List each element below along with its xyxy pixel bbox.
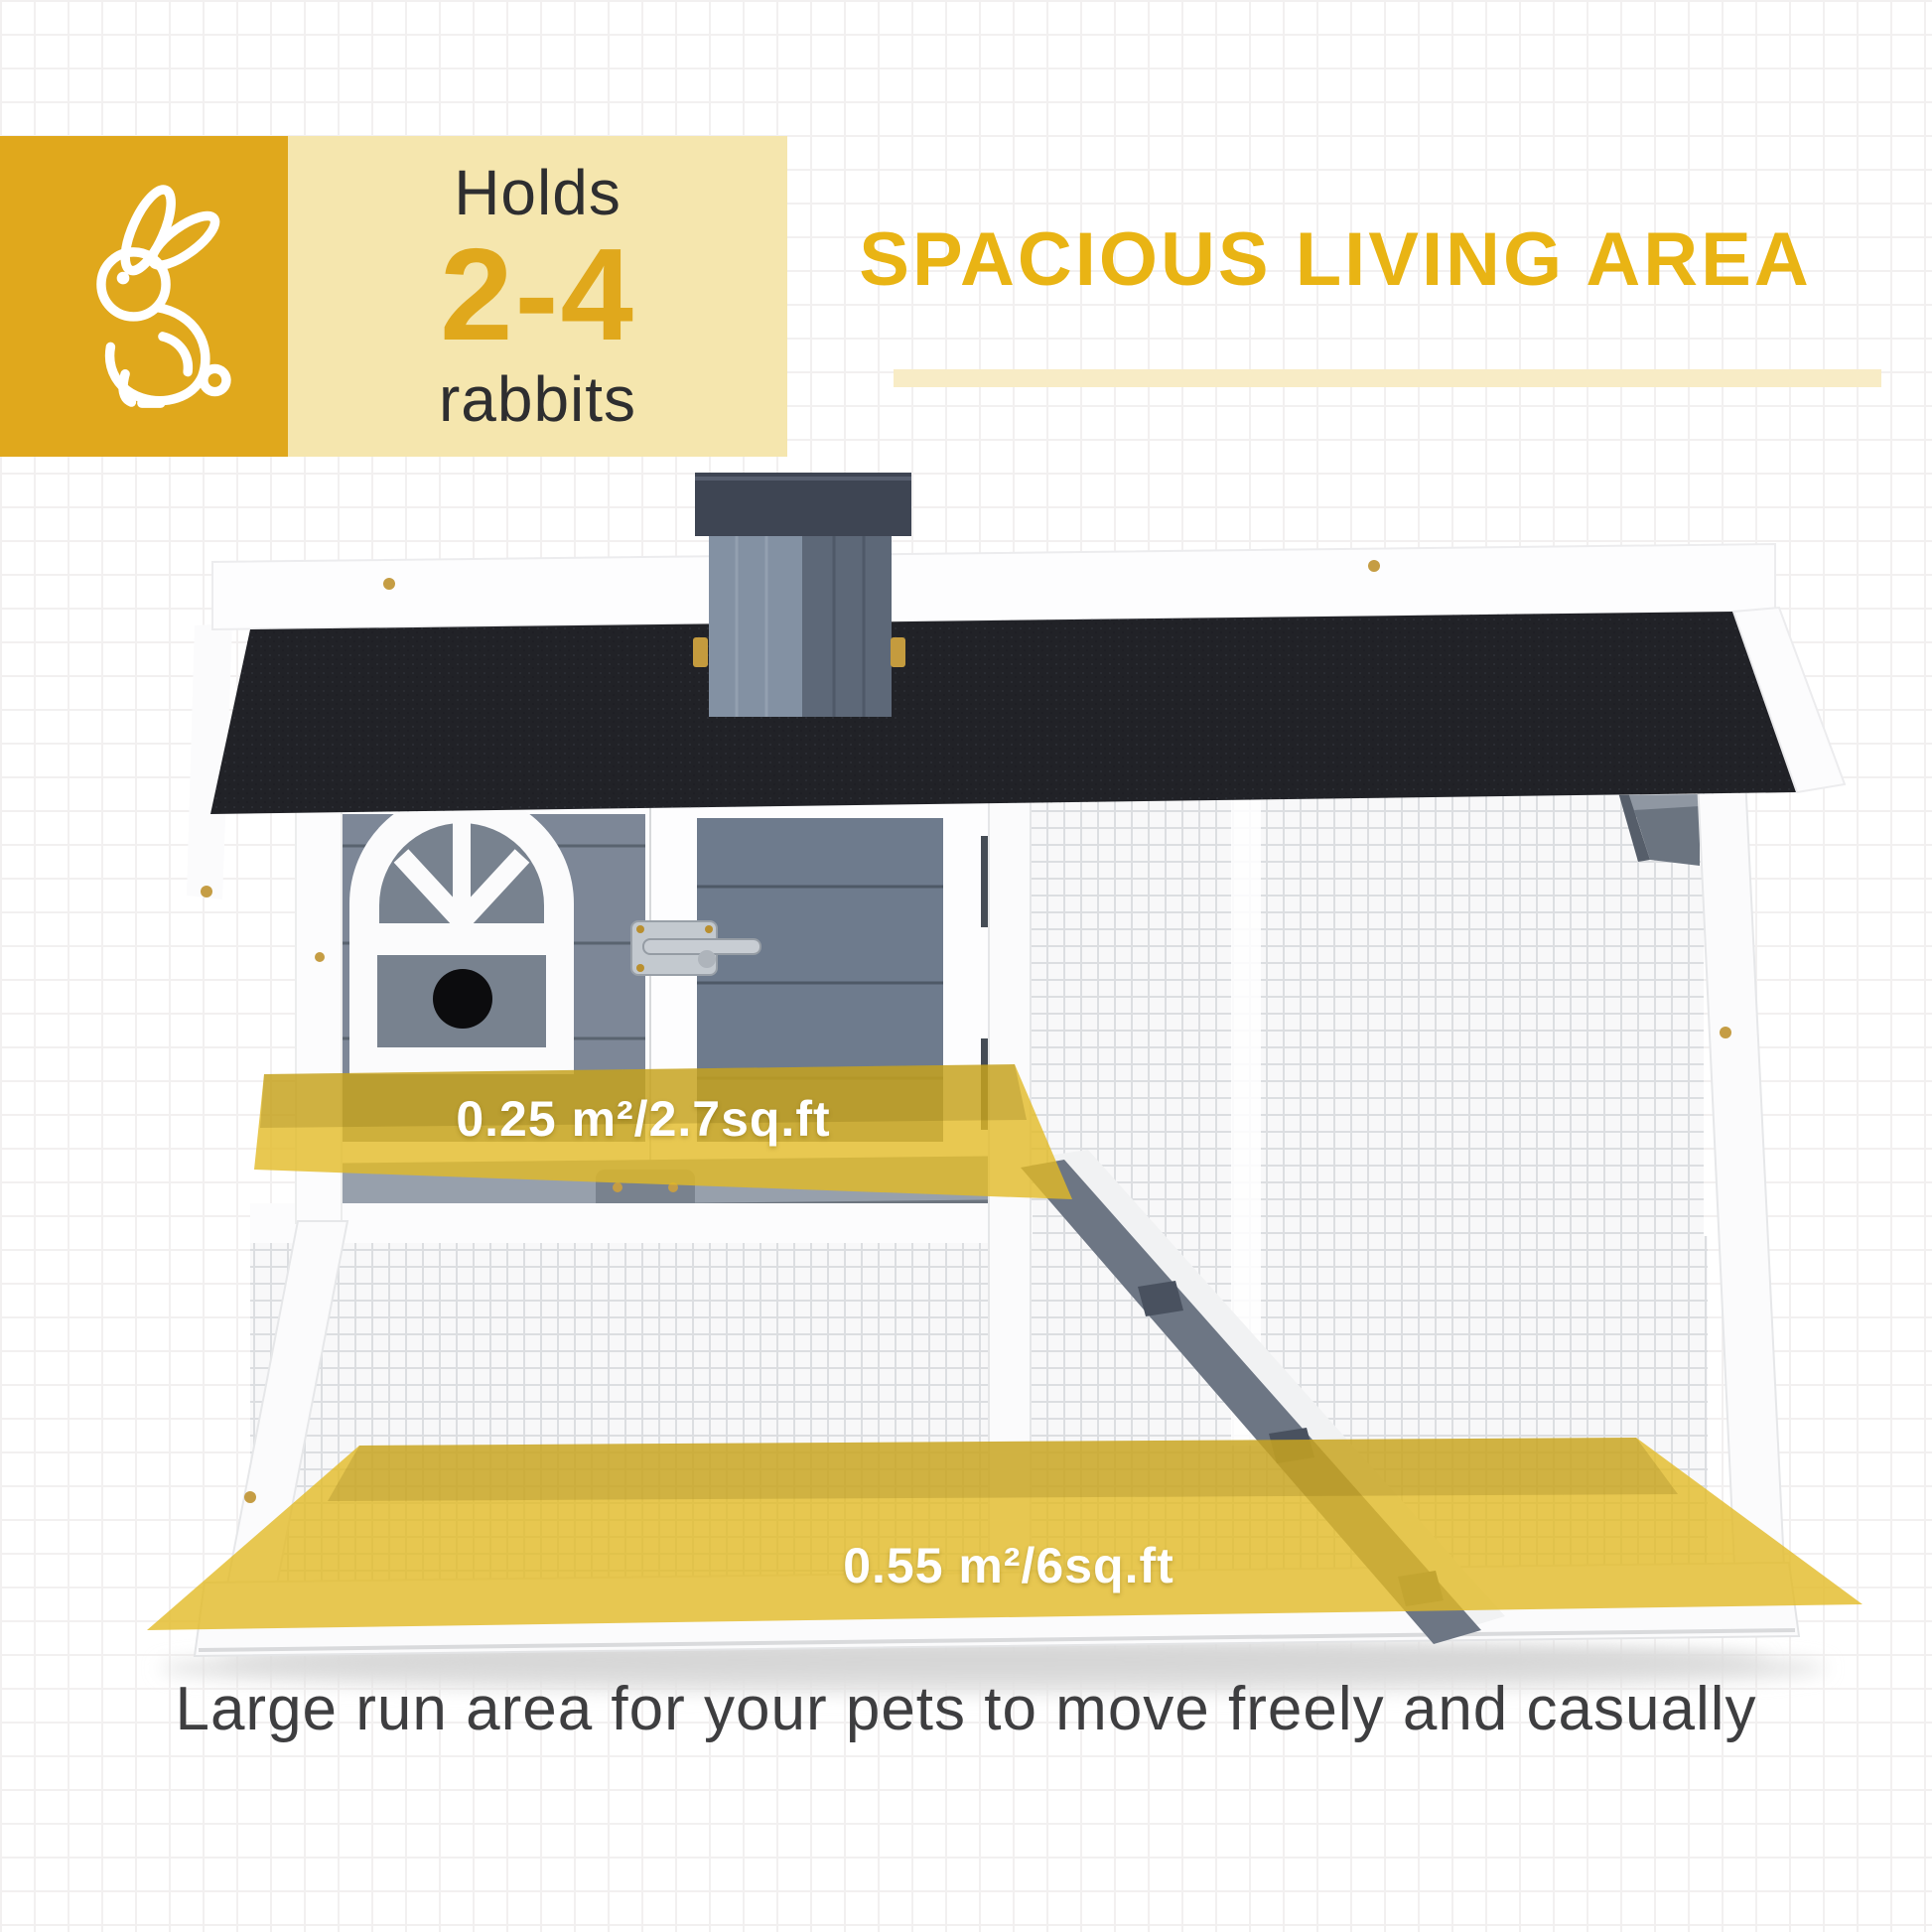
product-infographic: { "badge": { "holds": "Holds", "count": … [0, 0, 1932, 1932]
upper-area-measurement: 0.25 m²/2.7sq.ft [326, 1090, 961, 1148]
title-underline [894, 369, 1881, 387]
rabbit-icon [40, 178, 248, 416]
entry-hole [433, 969, 492, 1029]
capacity-count: 2-4 [440, 229, 635, 360]
arched-window [349, 791, 574, 1074]
animal-label: rabbits [439, 366, 636, 433]
caption-text: Large run area for your pets to move fre… [0, 1674, 1932, 1744]
page-title: SPACIOUS LIVING AREA [755, 216, 1916, 303]
lower-area-overlay [147, 1438, 1863, 1630]
rabbit-badge [0, 136, 288, 457]
capacity-panel: Holds 2-4 rabbits [288, 136, 787, 457]
lower-area-measurement: 0.55 m²/6sq.ft [691, 1537, 1326, 1594]
chimney [693, 473, 911, 717]
holds-label: Holds [454, 160, 621, 226]
